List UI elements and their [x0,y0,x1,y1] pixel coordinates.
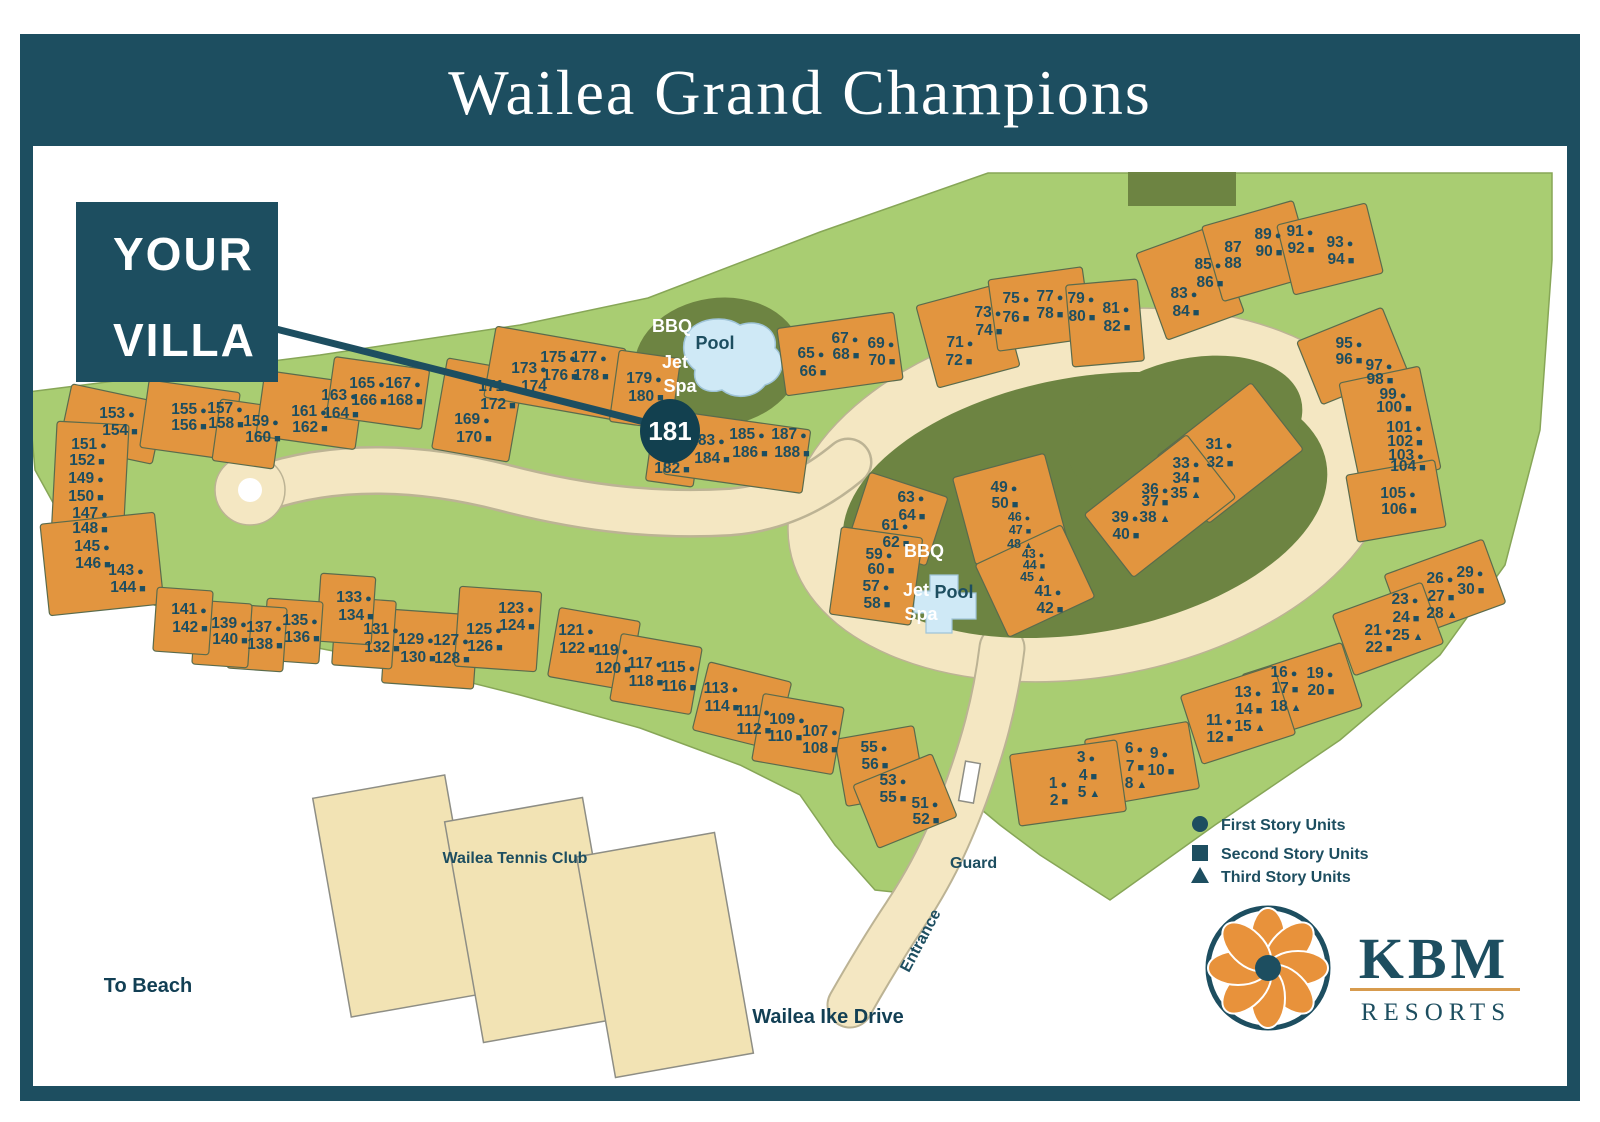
spa-label-2: Spa [904,604,938,624]
unit-label: 46● [1008,510,1030,524]
legend-second-story: Second Story Units [1221,846,1369,863]
first-story-icon [1192,816,1208,832]
second-story-icon [1192,845,1208,861]
unit-label: 48▲ [1007,537,1033,551]
unit-181-label: 181 [648,416,691,446]
kbm-logo: KBM RESORTS [1208,908,1520,1028]
page-title: Wailea Grand Champions [448,57,1152,128]
jet-label-2: Jet [903,580,929,600]
unit-label: 87 [1224,239,1241,256]
your-villa-line2: VILLA [113,314,256,366]
tennis-club-label: Wailea Tennis Club [443,850,588,867]
legend-third-story: Third Story Units [1221,869,1351,886]
pool-label-2: Pool [935,582,974,602]
tennis-courts [313,775,754,1077]
main-pool [684,319,782,396]
legend-first-story: First Story Units [1221,817,1346,834]
resort-map: 1●2■3●4■5▲6●7■8▲9●10■11●12■13●14■15▲16●1… [0,0,1600,1122]
guard-label: Guard [950,855,997,872]
unit-label: 45▲ [1020,570,1046,584]
legend: First Story Units Second Story Units Thi… [1191,816,1369,886]
jet-label: Jet [662,352,688,372]
building [1010,740,1127,826]
spa-label: Spa [663,376,697,396]
unit-label: 47■ [1009,523,1031,537]
third-story-icon [1191,867,1209,883]
resort-map-page: 1●2■3●4■5▲6●7■8▲9●10■11●12■13●14■15▲16●1… [0,0,1600,1122]
pool-label: Pool [696,333,735,353]
cul-de-sac-island [238,478,262,502]
logo-sub: RESORTS [1361,999,1511,1026]
drive-label: Wailea Ike Drive [752,1006,904,1028]
bbq-label: BBQ [652,316,692,336]
your-villa-line1: YOUR [113,228,254,280]
to-beach-label: To Beach [104,975,193,997]
logo-name: KBM [1359,926,1510,991]
unit-label: 88 [1224,255,1242,272]
bbq-label-2: BBQ [904,541,944,561]
logo-underline [1350,988,1520,991]
